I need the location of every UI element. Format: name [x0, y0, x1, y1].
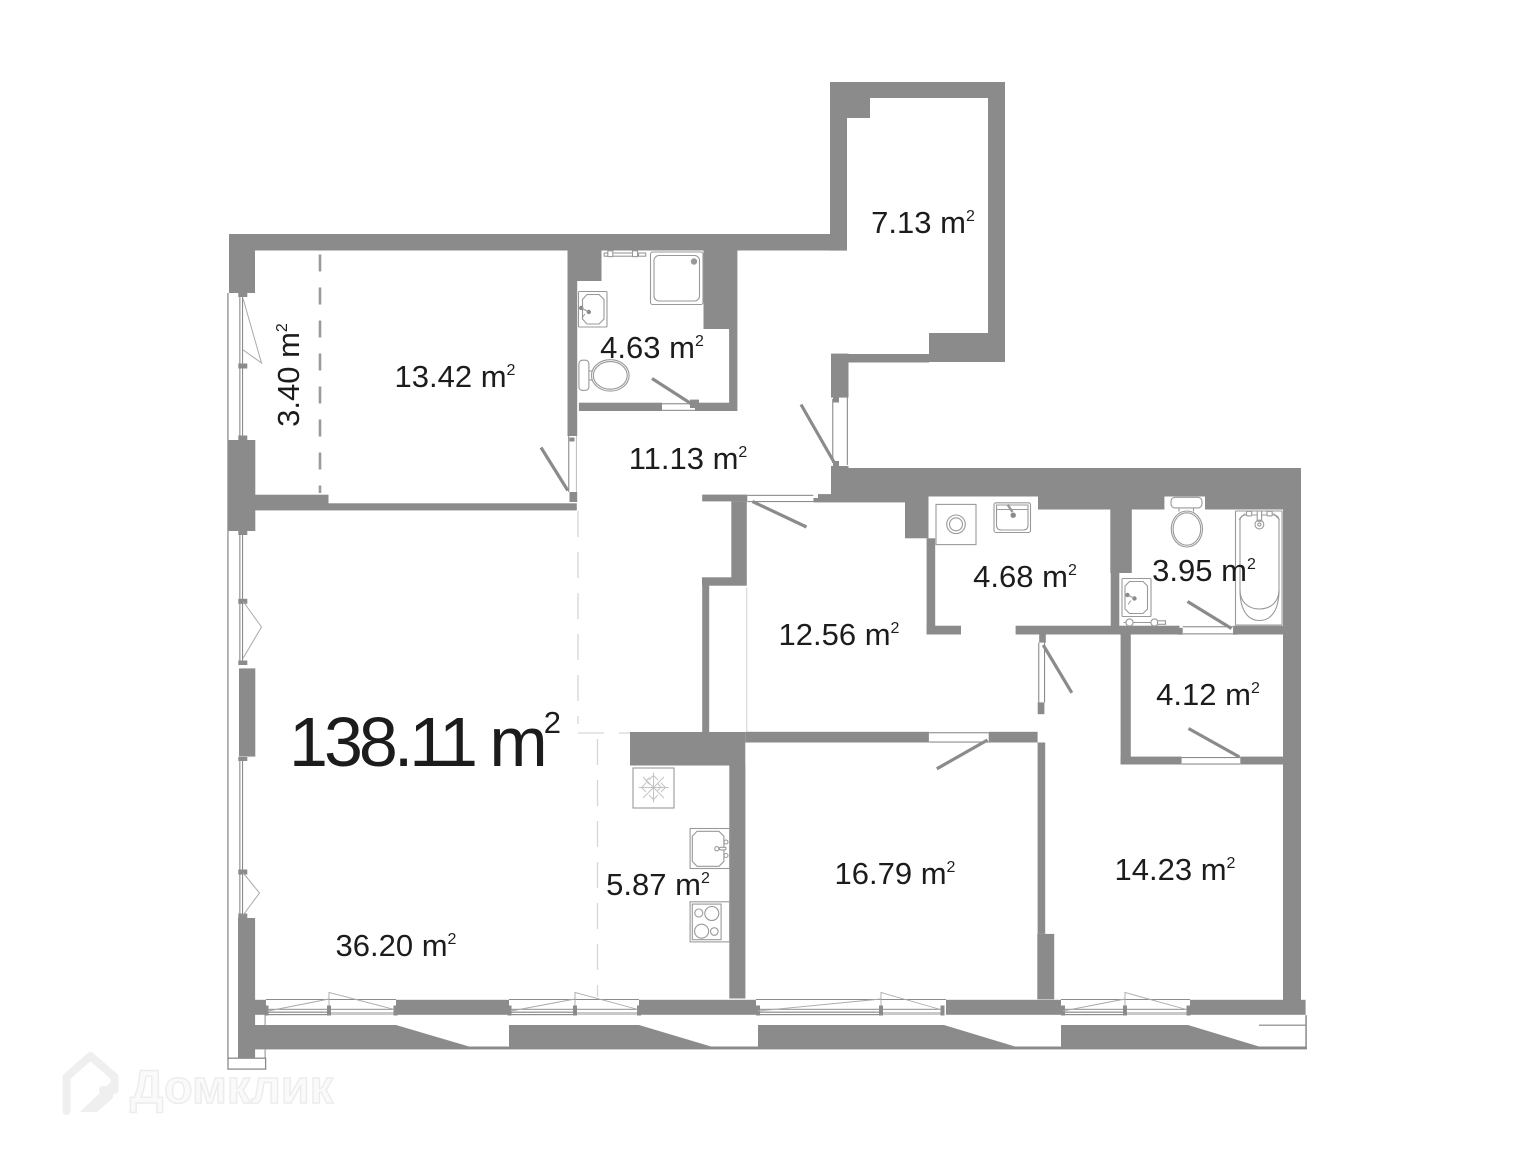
svg-text:16.79 m2: 16.79 m2	[835, 856, 956, 891]
svg-text:36.20 m2: 36.20 m2	[336, 928, 457, 963]
svg-text:11.13 m2: 11.13 m2	[629, 441, 748, 476]
svg-text:3.40 m2: 3.40 m2	[271, 323, 306, 427]
svg-text:13.42 m2: 13.42 m2	[395, 359, 516, 394]
svg-text:4.68 m2: 4.68 m2	[973, 559, 1077, 594]
svg-text:5.87 m2: 5.87 m2	[606, 867, 710, 902]
svg-text:4.63 m2: 4.63 m2	[600, 330, 704, 365]
svg-text:7.13 m2: 7.13 m2	[871, 205, 975, 240]
svg-text:4.12 m2: 4.12 m2	[1156, 677, 1260, 712]
svg-text:14.23 m2: 14.23 m2	[1115, 852, 1236, 887]
svg-text:12.56 m2: 12.56 m2	[779, 617, 900, 652]
svg-text:138.11 m2: 138.11 m2	[289, 703, 561, 781]
svg-text:3.95 m2: 3.95 m2	[1152, 553, 1256, 588]
svg-text:Домклик: Домклик	[130, 1060, 334, 1113]
